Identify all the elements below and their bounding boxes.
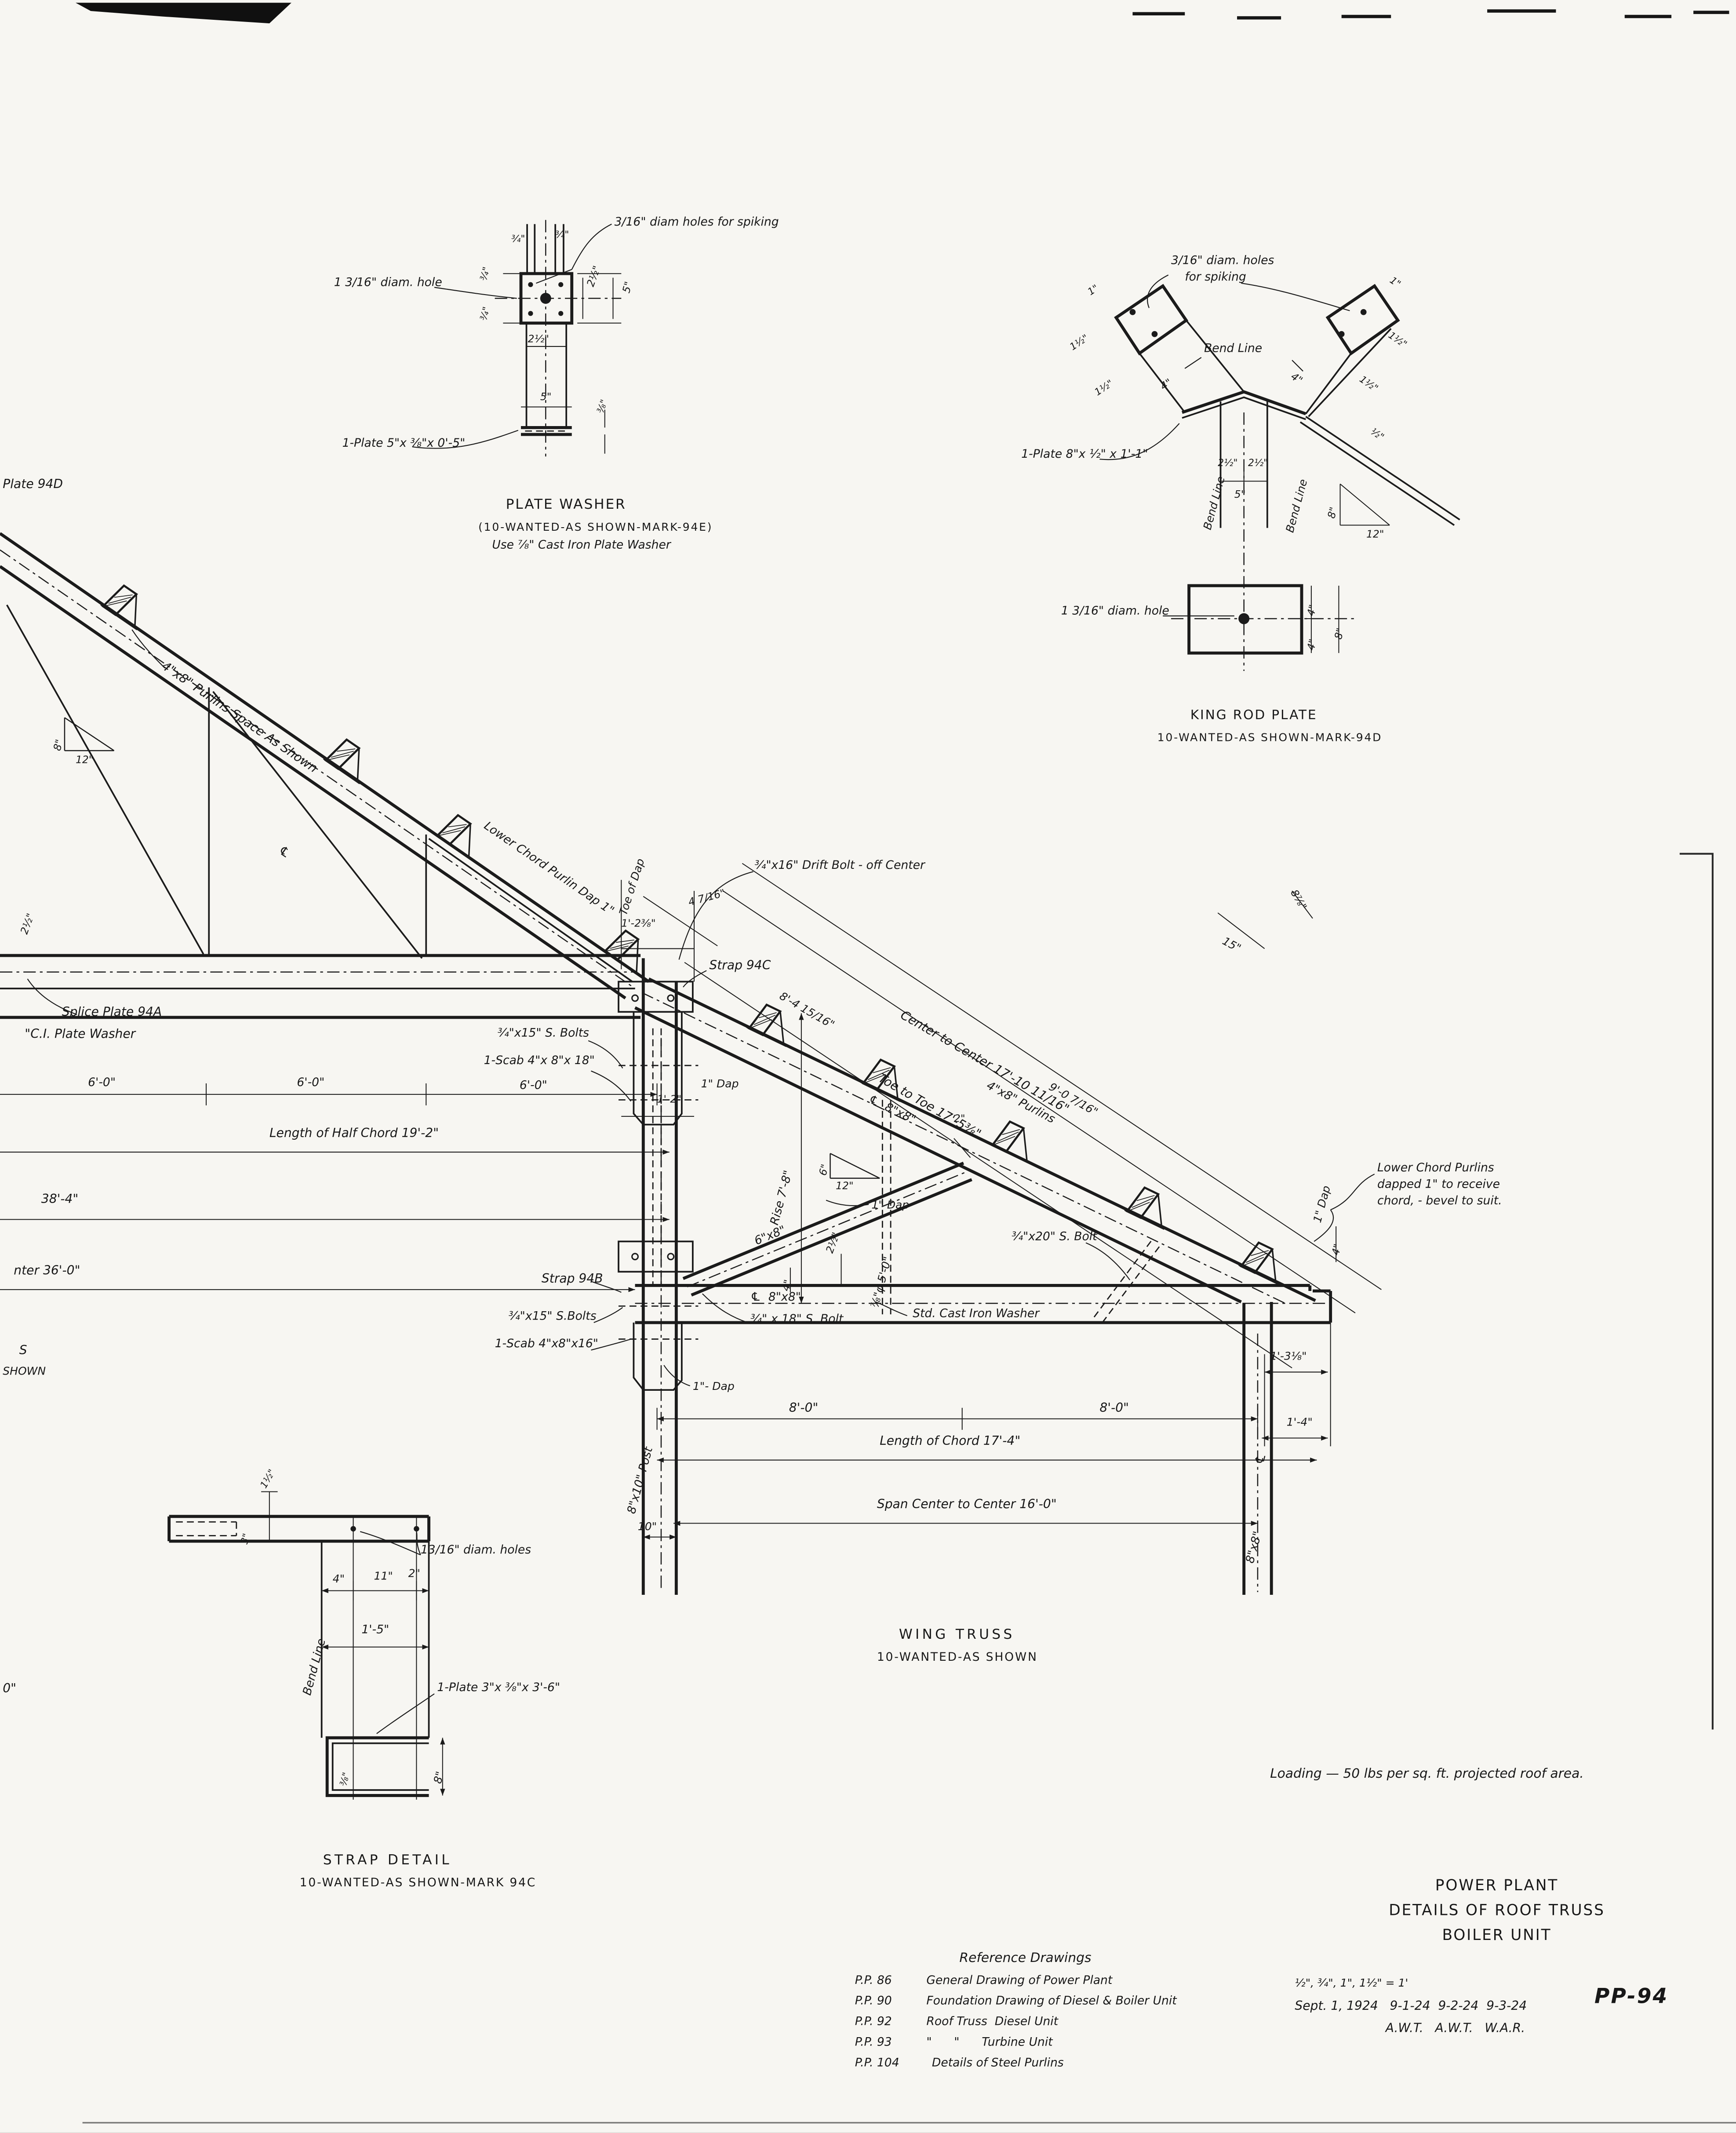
truss-members	[0, 273, 1398, 1795]
truss-drift-bolt-note: ¾"x16" Drift Bolt - off Center	[755, 860, 925, 874]
secondary-lines	[0, 224, 1460, 1790]
krp-spiking-2: for spiking	[1185, 272, 1246, 286]
reference-item-no: P.P. 104	[855, 2058, 899, 2072]
leader-lines	[28, 224, 1375, 1734]
truss-purlins-dapped-2: dapped 1" to receive	[1377, 1180, 1500, 1193]
strap-subtitle: 10-WANTED-AS SHOWN-MARK 94C	[300, 1878, 537, 1892]
truss-lower-bolts: ¾"x15" S.Bolts	[509, 1312, 597, 1325]
reference-item-desc: Details of Steel Purlins	[932, 2058, 1064, 2072]
truss-dim-6ft-b: 6'-0"	[297, 1078, 324, 1091]
krp-tri-run: 12"	[1366, 529, 1384, 541]
krp-bend-top: Bend Line	[1204, 344, 1262, 357]
reference-title: Reference Drawings	[959, 1952, 1091, 1967]
strap-dim-1-5: 1'-5"	[361, 1625, 389, 1639]
scan-line-right-edge	[1680, 854, 1713, 1730]
truss-dim-6ft-a: 6'-0"	[88, 1078, 116, 1091]
pw-title: PLATE WASHER	[506, 498, 626, 514]
truss-strap-94c: Strap 94C	[709, 959, 771, 974]
truss-dim-8ft-b: 8'-0"	[1099, 1402, 1129, 1416]
truss-tri-left-run: 12"	[76, 755, 94, 767]
truss-dim-center-36: nter 36'-0"	[14, 1265, 80, 1279]
truss-margin-s: S	[19, 1345, 27, 1359]
reference-item-no: P.P. 92	[855, 2017, 892, 2031]
truss-dap-mid: 1" Dap	[871, 1199, 909, 1211]
truss-subtitle: 10-WANTED-AS SHOWN	[877, 1652, 1038, 1666]
strap-title: STRAP DETAIL	[323, 1853, 452, 1869]
truss-bottom-chord-cl: ℄ 8"x8"	[750, 1292, 801, 1306]
pw-dim-34-a: ¾"	[511, 234, 525, 245]
pw-dim-2half-bot: 2½"	[528, 334, 549, 346]
truss-dim-1-3-18: 1'-3⅛"	[1270, 1350, 1307, 1363]
truss-dim-2: 2"	[954, 1114, 965, 1126]
title-line-1: POWER PLANT	[1375, 1878, 1620, 1896]
reference-item-desc: General Drawing of Power Plant	[926, 1976, 1112, 1989]
krp-dim-2half-a: 2½"	[1218, 458, 1237, 469]
truss-dap-lower: 1"- Dap	[693, 1380, 735, 1393]
reference-item-no: P.P. 93	[855, 2038, 892, 2051]
truss-half-chord-note: Length of Half Chord 19'-2"	[269, 1127, 439, 1141]
truss-dim-10: 10"	[638, 1520, 657, 1533]
scale-note: ½", ¾", 1", 1½" = 1'	[1295, 1977, 1408, 1990]
krp-hole-note: 1 3/16" diam. hole	[1061, 606, 1169, 620]
reference-item-desc: " " Turbine Unit	[926, 2038, 1052, 2051]
sheet-number: PP-94	[1594, 1985, 1668, 2009]
truss-edge-plate-ref: Plate 94D	[3, 478, 63, 492]
initials-line: A.W.T. A.W.T. W.A.R.	[1386, 2022, 1525, 2036]
date-line: Sept. 1, 1924 9-1-24 9-2-24 9-3-24	[1295, 2000, 1527, 2014]
truss-upper-bolts: ¾"x15" S. Bolts	[498, 1028, 589, 1042]
reference-item-desc: Foundation Drawing of Diesel & Boiler Un…	[926, 1996, 1176, 2010]
truss-bolt-20: ¾"x20" S. Bolt	[1012, 1232, 1097, 1246]
truss-span-note: Span Center to Center 16'-0"	[877, 1499, 1057, 1513]
scan-marks-top-right	[1132, 11, 1729, 18]
drawing-linework	[0, 0, 1736, 2133]
truss-dap-upper: 1" Dap	[701, 1078, 739, 1090]
truss-tri-mid-run: 12"	[836, 1181, 854, 1193]
truss-chord-length: Length of Chord 17'-4"	[880, 1435, 1020, 1449]
drawing-sheet: 3/16" diam holes for spiking ¾" ¾" ¾" ¾"…	[0, 0, 1736, 2133]
pw-plate-note: 1-Plate 5"x ⅜"x 0'-5"	[342, 438, 466, 452]
truss-dim-1-2-38: 1'-2⅜"	[621, 919, 655, 930]
reference-item-desc: Roof Truss Diesel Unit	[926, 2017, 1058, 2031]
scan-blot-top-left	[76, 3, 291, 23]
pw-note: Use ⅞" Cast Iron Plate Washer	[492, 540, 670, 554]
slope-triangles	[65, 718, 880, 1178]
krp-spiking-1: 3/16" diam. holes	[1171, 256, 1274, 270]
truss-margin-shown: SHOWN	[3, 1365, 46, 1378]
title-line-3: BOILER UNIT	[1375, 1928, 1620, 1945]
strap-dim-2: 2"	[408, 1567, 420, 1580]
truss-title: WING TRUSS	[899, 1628, 1015, 1644]
purlins	[101, 581, 1291, 1284]
krp-subtitle: 10-WANTED-AS SHOWN-MARK-94D	[1157, 731, 1383, 744]
pw-hole-note: 1 3/16" diam. hole	[334, 278, 442, 292]
truss-splice-plate: Splice Plate 94A	[62, 1006, 162, 1021]
title-line-2: DETAILS OF ROOF TRUSS	[1375, 1903, 1620, 1920]
truss-lower-scab: 1-Scab 4"x8"x16"	[495, 1339, 598, 1353]
pw-spiking-note: 3/16" diam holes for spiking	[615, 217, 779, 231]
truss-purlins-dapped-1: Lower Chord Purlins	[1377, 1163, 1494, 1177]
truss-dim-1-4: 1'-4"	[1287, 1416, 1313, 1429]
truss-strap-94b: Strap 94B	[542, 1273, 603, 1287]
krp-dim-2half-b: 2½"	[1248, 458, 1268, 469]
truss-bolt-18: ¾" x 18" S. Bolt	[750, 1314, 843, 1328]
truss-washer-note: Std. Cast Iron Washer	[913, 1309, 1039, 1323]
truss-dim-38-4: 38'-4"	[41, 1193, 79, 1207]
krp-title: KING ROD PLATE	[1190, 709, 1317, 724]
loading-note: Loading — 50 lbs per sq. ft. projected r…	[1270, 1768, 1584, 1783]
krp-dim-5: 5"	[1234, 489, 1246, 501]
pw-subtitle: (10-WANTED-AS SHOWN-MARK-94E)	[478, 521, 713, 534]
truss-margin-zero: 0"	[3, 1683, 16, 1697]
strap-dim-11: 11"	[374, 1570, 393, 1583]
strap-dim-4: 4"	[333, 1573, 345, 1586]
pw-dim-5-bot: 5"	[540, 392, 552, 404]
pw-dim-34-b: ¾"	[555, 230, 569, 241]
truss-purlins-dapped-3: chord, - bevel to suit.	[1377, 1196, 1502, 1210]
krp-plate-note: 1-Plate 8"x ½" x 1'-1"	[1021, 449, 1148, 463]
truss-dim-8ft-a: 8'-0"	[789, 1402, 819, 1416]
truss-ci-plate-washer: "C.I. Plate Washer	[25, 1028, 135, 1043]
reference-item-no: P.P. 86	[855, 1976, 892, 1989]
strap-holes-note: 13/16" diam. holes	[421, 1545, 531, 1559]
strap-plate-note: 1-Plate 3"x ⅜"x 3'-6"	[437, 1683, 560, 1696]
reference-item-no: P.P. 90	[855, 1996, 892, 2010]
truss-dim-1-2: 1'-2"	[657, 1094, 682, 1106]
truss-dim-6ft-c: 6'-0"	[520, 1081, 547, 1094]
truss-upper-scab: 1-Scab 4"x 8"x 18"	[484, 1056, 595, 1069]
